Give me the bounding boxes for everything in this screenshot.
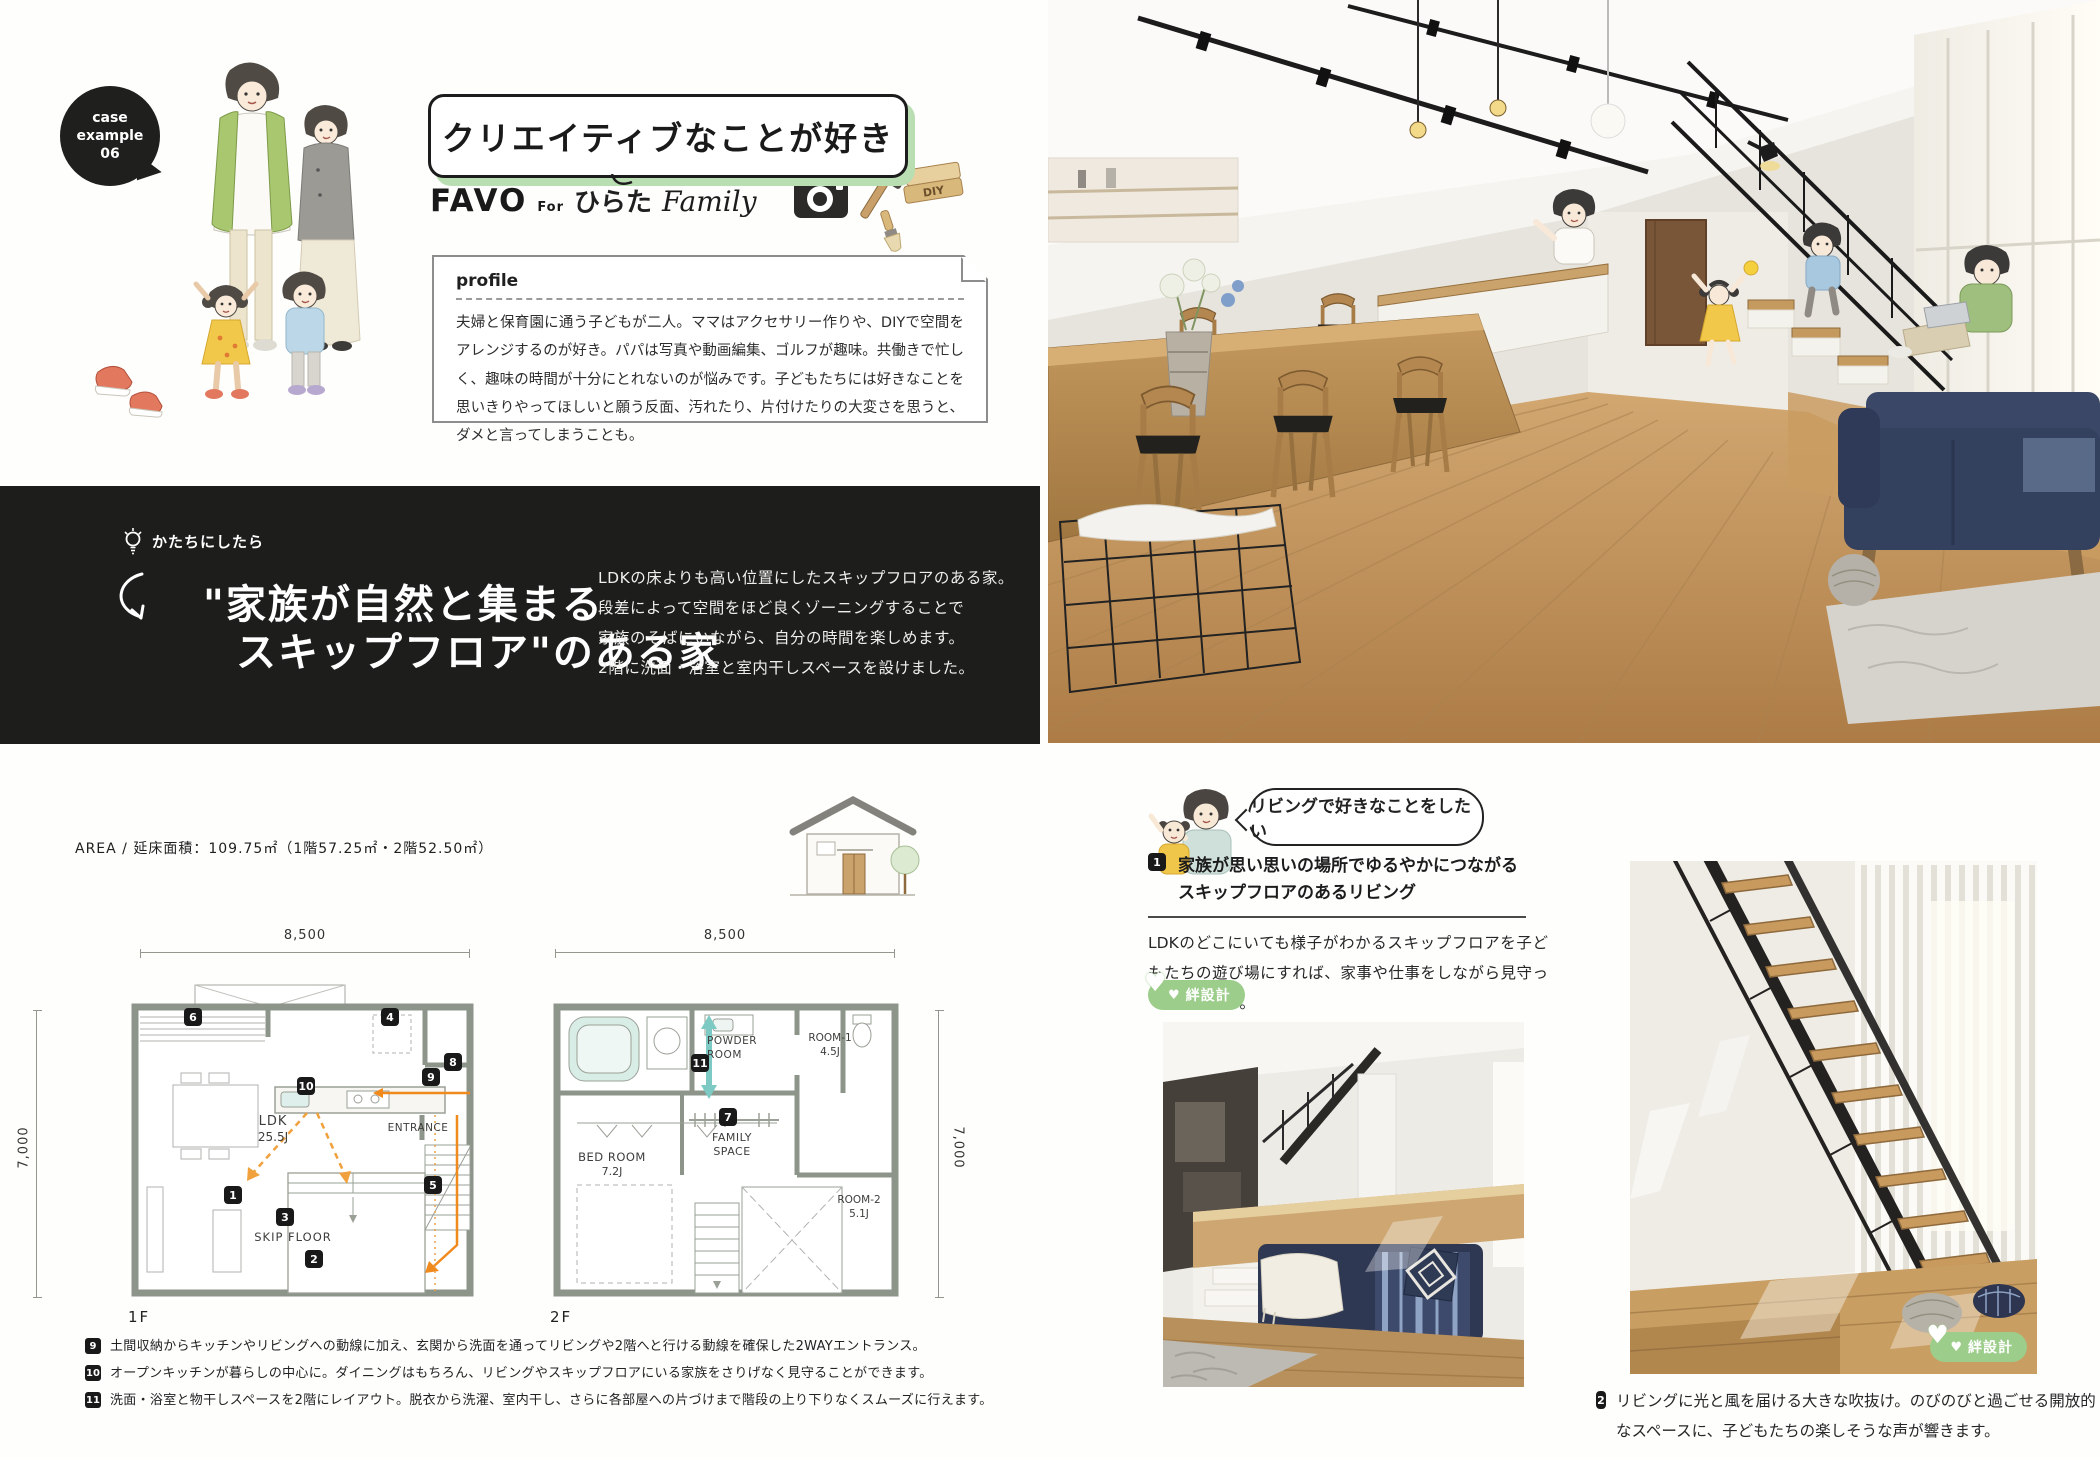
feature-bubble-text: リビングで好きなことをしたい [1250, 792, 1482, 842]
plan-marker-8: 8 [444, 1053, 462, 1071]
void-staircase-photo: ♥ ♥ 絆設計 [1630, 861, 2037, 1374]
floor1-depth-dim-line [36, 1010, 45, 1298]
area-label: AREA / 延床面積：109.75㎡（1階57.25㎡・2階52.50㎡） [75, 838, 493, 858]
feature-divider [1148, 916, 1526, 918]
magazine-spread: case example 06 [0, 0, 2100, 1458]
plan-marker-11: 11 [691, 1054, 709, 1072]
plan-marker-5: 5 [424, 1176, 442, 1194]
paintbrush-icon [876, 209, 904, 252]
heart-icon: ♥ [1926, 1320, 1949, 1349]
kizuna-badge-label: 絆設計 [1968, 1337, 2013, 1357]
note-text: オープンキッチンが暮らしの中心に。ダイニングはもちろん、リビングやスキップフロア… [110, 1365, 933, 1383]
floor1-depth-dim: 7,000 [17, 1118, 32, 1178]
floor2-depth-dim-line [938, 1010, 947, 1298]
house-illustration [785, 790, 920, 908]
skipfloor-sofa-photo [1163, 1022, 1524, 1387]
floor2-width-dim: 8,500 [555, 928, 895, 943]
svg-text:LDK: LDK [259, 1114, 288, 1129]
lightbulb-icon [122, 527, 144, 555]
feature-point1-heading: 1 家族が思い思いの場所でゆるやかにつながる スキップフロアのあるリビング [1148, 853, 1518, 907]
floor-plan-1f: LDK 25.5J ENTRANCE SKIP FLOOR [125, 975, 480, 1300]
svg-text:SPACE: SPACE [713, 1145, 750, 1158]
plan-notes: 9 土間収納からキッチンやリビングへの動線に加え、玄関から洗面を通ってリビングや… [85, 1338, 1025, 1419]
logo-family-word: Family [662, 185, 757, 218]
note-row: 11 洗面・浴室と物干しスペースを2階にレイアウト。脱衣から洗濯、室内干し、さら… [85, 1392, 1025, 1410]
note-marker: 9 [85, 1338, 101, 1354]
note-row: 9 土間収納からキッチンやリビングへの動線に加え、玄関から洗面を通ってリビングや… [85, 1338, 1025, 1356]
note-row: 10 オープンキッチンが暮らしの中心に。ダイニングはもちろん、リビングやスキップ… [85, 1365, 1025, 1383]
svg-text:25.5J: 25.5J [258, 1130, 288, 1144]
floor2-depth-dim: 7,000 [951, 1118, 966, 1178]
svg-text:ROOM-1: ROOM-1 [808, 1032, 851, 1044]
main-interior-photo [1048, 0, 2100, 743]
point1-title-line1: 家族が思い思いの場所でゆるやかにつながる [1178, 853, 1518, 880]
plan-marker-3: 3 [276, 1208, 294, 1226]
camera-icon [794, 174, 848, 218]
note-text: 土間収納からキッチンやリビングへの動線に加え、玄関から洗面を通ってリビングや2階… [110, 1338, 926, 1356]
heart-icon: ♥ [1168, 988, 1181, 1003]
kizuna-badge: ♥ ♥ 絆設計 [1148, 980, 1245, 1010]
pouf-navy [1973, 1284, 2025, 1318]
point2-text: リビングに光と風を届ける大きな吹抜け。のびのびと過ごせる開放的なスペースに、子ど… [1616, 1386, 2096, 1446]
case-example-badge: case example 06 [60, 86, 160, 186]
svg-text:5.1J: 5.1J [849, 1208, 869, 1220]
point1-marker: 1 [1148, 853, 1166, 871]
case-badge-line3: 06 [100, 145, 119, 163]
svg-text:FAMILY: FAMILY [712, 1131, 752, 1144]
main-title-box: クリエイティブなことが好き [428, 94, 908, 178]
svg-text:ENTRANCE: ENTRANCE [388, 1122, 449, 1134]
floor1-width-dim: 8,500 [140, 928, 470, 943]
pouf [1828, 554, 1880, 606]
svg-text:4.5J: 4.5J [820, 1046, 840, 1058]
note-text: 洗面・浴室と物干しスペースを2階にレイアウト。脱衣から洗濯、室内干し、さらに各部… [110, 1392, 993, 1410]
logo-family-name: ひらた [574, 182, 652, 219]
floor2-width-dim-line [555, 952, 895, 961]
case-badge-line1: case [92, 109, 128, 127]
svg-text:BED ROOM: BED ROOM [578, 1150, 646, 1164]
profile-text: 夫婦と保育園に通う子どもが二人。ママはアクセサリー作りや、DIYで空間をアレンジ… [456, 309, 964, 450]
svg-text:POWDER: POWDER [707, 1035, 757, 1047]
plan-marker-2: 2 [305, 1250, 323, 1268]
concept-body-line: 家族のそばにいながら、自分の時間を楽しめます。 [598, 623, 1028, 653]
plan-marker-4: 4 [381, 1008, 399, 1026]
heart-icon: ♥ [1950, 1340, 1963, 1355]
brand-logo: FAVO For ひらた Family [430, 182, 757, 222]
case-badge-line2: example [77, 127, 144, 145]
point1-title-line2: スキップフロアのあるリビング [1178, 880, 1518, 907]
diy-sign-icon: DIY [901, 162, 963, 204]
main-title: クリエイティブなことが好き [442, 112, 894, 160]
floor2-label: 2F [550, 1308, 572, 1326]
logo-for: For [537, 200, 564, 215]
curved-arrow-icon [108, 570, 172, 632]
sneakers-icon [95, 366, 162, 417]
kizuna-badge: ♥ ♥ 絆設計 [1930, 1332, 2027, 1362]
plan-marker-7: 7 [719, 1108, 737, 1126]
svg-text:SKIP FLOOR: SKIP FLOOR [254, 1230, 332, 1244]
concept-body: LDKの床よりも高い位置にしたスキップフロアのある家。 段差によって空間をほど良… [598, 563, 1028, 683]
plan-marker-9: 9 [422, 1068, 440, 1086]
point2-marker: 2 [1596, 1391, 1606, 1409]
plan-marker-10: 10 [297, 1077, 315, 1095]
profile-divider [456, 298, 964, 300]
floor1-width-dim-line [140, 952, 470, 961]
svg-text:ROOM-2: ROOM-2 [837, 1194, 880, 1206]
logo-favo: FAVO [430, 183, 527, 219]
profile-heading: profile [456, 271, 964, 291]
concept-eyebrow: かたちにしたら [122, 527, 264, 555]
concept-body-line: LDKの床よりも高い位置にしたスキップフロアのある家。 [598, 563, 1028, 593]
feature-speech-bubble: リビングで好きなことをしたい [1248, 788, 1484, 846]
floor-plan-2f: POWDER ROOM BED ROOM 7.2J FAMILY SPACE R… [547, 975, 905, 1300]
plan-marker-6: 6 [184, 1008, 202, 1026]
floor1-label: 1F [128, 1308, 150, 1326]
svg-text:ROOM: ROOM [707, 1049, 742, 1061]
note-marker: 11 [85, 1392, 101, 1408]
concept-eyebrow-text: かたちにしたら [152, 531, 264, 552]
concept-body-line: 2階に洗面・浴室と室内干しスペースを設けました。 [598, 653, 1028, 683]
feature-point2: 2 リビングに光と風を届ける大きな吹抜け。のびのびと過ごせる開放的なスペースに、… [1596, 1386, 2096, 1446]
profile-box: profile 夫婦と保育園に通う子どもが二人。ママはアクセサリー作りや、DIY… [432, 255, 988, 423]
concept-body-line: 段差によって空間をほど良くゾーニングすることで [598, 593, 1028, 623]
kizuna-badge-label: 絆設計 [1186, 985, 1231, 1005]
svg-text:7.2J: 7.2J [602, 1165, 623, 1178]
note-marker: 10 [85, 1365, 101, 1381]
heart-icon: ♥ [1144, 968, 1167, 997]
plan-marker-1: 1 [224, 1186, 242, 1204]
